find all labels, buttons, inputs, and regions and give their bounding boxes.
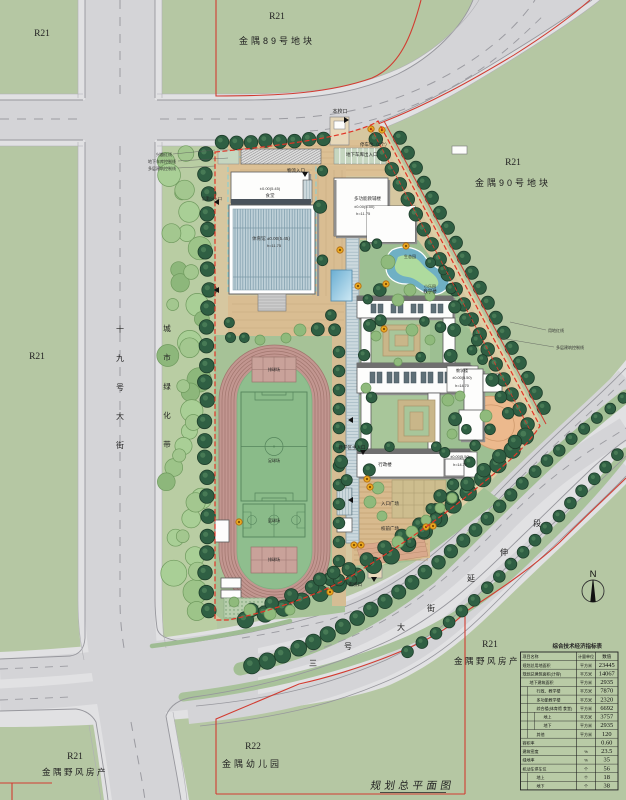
svg-text:城: 城 xyxy=(163,324,171,333)
svg-text:综合楼(体育馆 食堂): 综合楼(体育馆 食堂) xyxy=(537,705,573,711)
svg-text:行政楼: 行政楼 xyxy=(378,461,392,468)
svg-text:地下车库出入口: 地下车库出入口 xyxy=(346,151,378,158)
svg-text:N: N xyxy=(590,569,597,580)
svg-text:平方米: 平方米 xyxy=(580,688,592,694)
svg-text:地上: 地上 xyxy=(537,774,545,780)
svg-text:平方米: 平方米 xyxy=(580,679,592,685)
svg-text:大: 大 xyxy=(116,411,124,421)
svg-text:±0.00(5.45): ±0.00(5.45) xyxy=(260,186,281,191)
svg-text:多层建筑控制线: 多层建筑控制线 xyxy=(556,344,584,350)
svg-text:教学楼: 教学楼 xyxy=(456,367,468,373)
svg-text:平方米: 平方米 xyxy=(580,705,592,711)
svg-text:食堂: 食堂 xyxy=(266,192,275,199)
svg-text:兴趣红线: 兴趣红线 xyxy=(156,151,172,157)
svg-text:2935: 2935 xyxy=(600,722,613,729)
svg-text:足球场: 足球场 xyxy=(268,457,280,463)
svg-text:教学区主入口: 教学区主入口 xyxy=(339,444,366,451)
svg-text:个: 个 xyxy=(584,766,588,771)
svg-text:停车位（9个）: 停车位（9个） xyxy=(360,141,390,148)
svg-text:R21: R21 xyxy=(482,640,498,650)
svg-text:平方米: 平方米 xyxy=(580,731,592,737)
svg-text:化: 化 xyxy=(163,410,171,420)
svg-text:十: 十 xyxy=(116,324,124,334)
svg-text:平方米: 平方米 xyxy=(580,714,592,720)
svg-text:延: 延 xyxy=(467,573,475,583)
svg-text:地下建筑面积: 地下建筑面积 xyxy=(530,679,554,685)
svg-text:金隅90号地块: 金隅90号地块 xyxy=(475,177,551,188)
svg-text:段: 段 xyxy=(533,518,541,528)
svg-text:金隅野风房产: 金隅野风房产 xyxy=(42,767,108,777)
svg-text:18: 18 xyxy=(604,774,610,781)
svg-text:金隅幼儿园: 金隅幼儿园 xyxy=(222,758,282,769)
svg-text:建筑密度: 建筑密度 xyxy=(523,748,539,754)
svg-text:号: 号 xyxy=(344,642,352,651)
svg-text:容积率: 容积率 xyxy=(523,739,535,745)
svg-text:地下: 地下 xyxy=(544,722,552,728)
svg-text:计量单位: 计量单位 xyxy=(578,653,594,659)
svg-text:绿地率: 绿地率 xyxy=(523,757,535,763)
svg-text:平方米: 平方米 xyxy=(580,670,592,676)
svg-text:体育馆 ±0.00(5.45): 体育馆 ±0.00(5.45) xyxy=(252,235,290,242)
svg-text:R21: R21 xyxy=(269,12,285,22)
svg-text:平方米: 平方米 xyxy=(580,662,592,668)
svg-text:R21: R21 xyxy=(34,29,50,39)
svg-text:6692: 6692 xyxy=(600,705,613,712)
svg-text:地下车库控制线: 地下车库控制线 xyxy=(148,158,176,164)
svg-text:大: 大 xyxy=(397,622,405,632)
svg-text:23445: 23445 xyxy=(599,662,615,669)
svg-text:地下: 地下 xyxy=(537,783,545,789)
svg-text:个: 个 xyxy=(584,784,588,789)
svg-text:小乐园: 小乐园 xyxy=(424,283,436,289)
svg-text:多功能教辅楼: 多功能教辅楼 xyxy=(354,195,381,202)
svg-text:用地红线: 用地红线 xyxy=(548,327,564,333)
svg-text:规划总建筑面积(计容): 规划总建筑面积(计容) xyxy=(523,670,562,676)
svg-text:街: 街 xyxy=(116,440,124,450)
svg-text:排球场: 排球场 xyxy=(268,556,280,562)
svg-text:h=14.70: h=14.70 xyxy=(455,384,469,388)
svg-text:生态园: 生态园 xyxy=(404,253,416,259)
svg-text:多功能教学楼: 多功能教学楼 xyxy=(537,696,561,702)
svg-text:绿: 绿 xyxy=(163,382,171,391)
svg-text:规划总用地面积: 规划总用地面积 xyxy=(523,662,551,668)
svg-text:机动车停车位: 机动车停车位 xyxy=(523,765,547,771)
svg-text:带: 带 xyxy=(163,440,171,449)
svg-text:%: % xyxy=(584,758,588,763)
svg-text:38: 38 xyxy=(604,783,610,790)
svg-text:九: 九 xyxy=(116,354,124,363)
svg-text:篮球场: 篮球场 xyxy=(268,517,280,523)
svg-text:平方米: 平方米 xyxy=(580,722,592,728)
svg-text:±0.00(5.50): ±0.00(5.50) xyxy=(450,455,470,459)
svg-text:伸: 伸 xyxy=(500,547,508,557)
svg-text:R21: R21 xyxy=(67,752,83,762)
svg-text:35: 35 xyxy=(604,757,610,764)
svg-text:项目名称: 项目名称 xyxy=(523,653,539,659)
svg-text:7870: 7870 xyxy=(600,688,613,695)
svg-text:R21: R21 xyxy=(29,352,45,362)
svg-text:行政、教学楼: 行政、教学楼 xyxy=(537,688,561,694)
svg-text:排球场: 排球场 xyxy=(268,366,280,372)
svg-text:±0.00(5.50): ±0.00(5.50) xyxy=(354,204,375,209)
svg-text:数值: 数值 xyxy=(602,653,611,660)
svg-text:平方米: 平方米 xyxy=(580,696,592,702)
svg-text:金隅野风房产: 金隅野风房产 xyxy=(454,656,520,666)
svg-text:个: 个 xyxy=(584,775,588,780)
svg-text:h=11.75: h=11.75 xyxy=(356,211,371,216)
svg-text:0.60: 0.60 xyxy=(601,739,612,746)
svg-text:h=14.70: h=14.70 xyxy=(453,463,467,467)
svg-text:3757: 3757 xyxy=(600,714,614,721)
svg-text:校前广场: 校前广场 xyxy=(381,525,399,532)
svg-text:R22: R22 xyxy=(245,742,261,752)
svg-text:120: 120 xyxy=(602,731,612,738)
svg-text:R21: R21 xyxy=(505,158,521,168)
svg-text:h=11.75: h=11.75 xyxy=(267,243,282,248)
svg-text:%: % xyxy=(584,749,588,754)
svg-text:本校口: 本校口 xyxy=(332,108,347,115)
svg-text:金隅89号地块: 金隅89号地块 xyxy=(239,35,315,46)
svg-text:56: 56 xyxy=(604,765,610,772)
svg-text:市: 市 xyxy=(163,352,171,362)
svg-text:23.5: 23.5 xyxy=(601,748,612,755)
svg-text:街: 街 xyxy=(427,603,435,613)
svg-text:多层建筑控制线: 多层建筑控制线 xyxy=(148,165,176,171)
svg-text:号: 号 xyxy=(116,383,124,392)
svg-text:综合技术经济指标表: 综合技术经济指标表 xyxy=(552,642,602,650)
svg-text:三: 三 xyxy=(309,659,317,668)
svg-text:2320: 2320 xyxy=(600,696,613,703)
svg-text:其他: 其他 xyxy=(537,731,545,737)
svg-text:14067: 14067 xyxy=(599,670,616,677)
svg-text:入口广场: 入口广场 xyxy=(381,500,399,507)
svg-text:南校口: 南校口 xyxy=(349,581,363,588)
svg-text:2935: 2935 xyxy=(600,679,613,686)
svg-text:教学楼: 教学楼 xyxy=(423,288,437,295)
svg-text:地上: 地上 xyxy=(544,714,552,720)
svg-text:±0.00(5.50): ±0.00(5.50) xyxy=(452,376,472,380)
svg-text:物流入口: 物流入口 xyxy=(287,167,305,174)
svg-text:规划总平面图: 规划总平面图 xyxy=(369,779,455,792)
